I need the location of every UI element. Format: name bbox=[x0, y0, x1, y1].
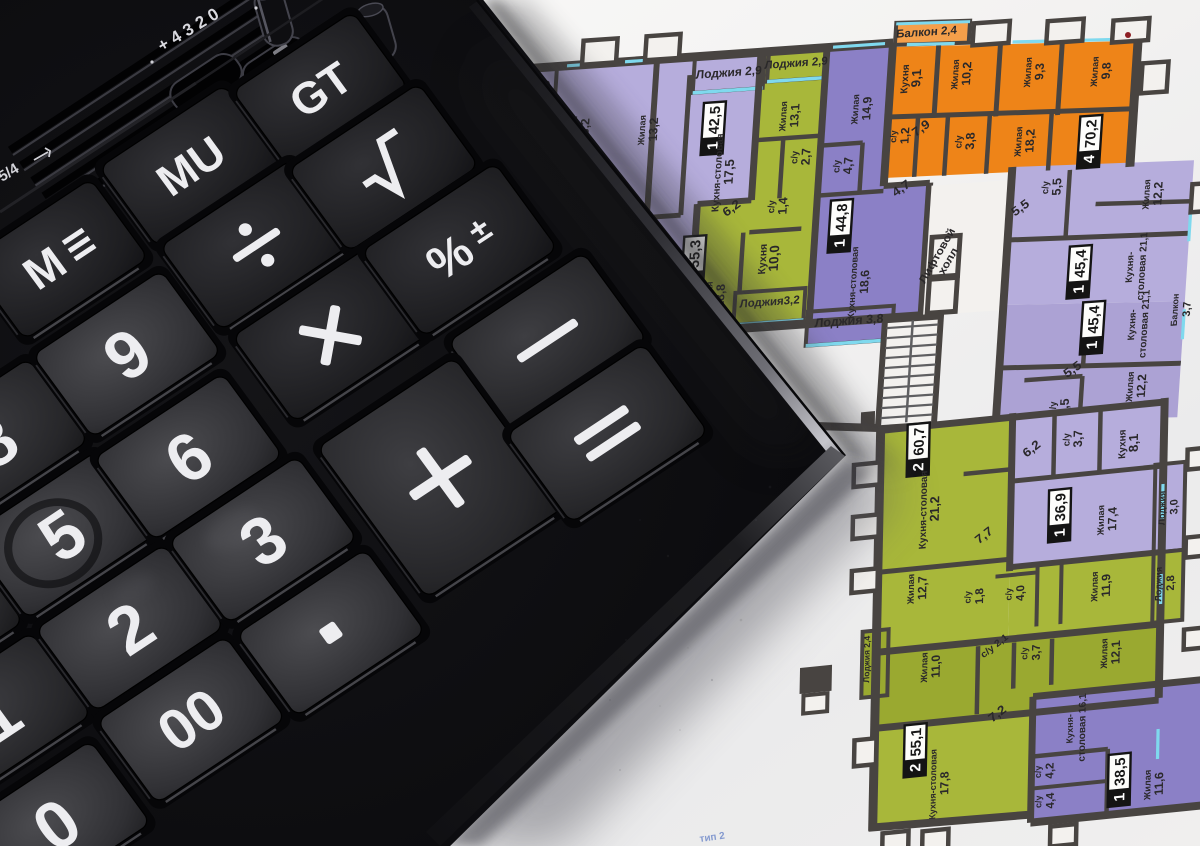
svg-text:18,6: 18,6 bbox=[857, 269, 873, 294]
svg-text:3,0: 3,0 bbox=[1168, 499, 1180, 515]
svg-text:с/у: с/у bbox=[1033, 795, 1043, 809]
svg-text:17,4: 17,4 bbox=[1105, 506, 1119, 531]
svg-text:9,1: 9,1 bbox=[908, 69, 924, 88]
svg-text:3,7: 3,7 bbox=[1181, 301, 1194, 317]
svg-text:3,7: 3,7 bbox=[1031, 644, 1043, 661]
svg-text:4,4: 4,4 bbox=[1045, 791, 1057, 809]
svg-text:21,2: 21,2 bbox=[927, 495, 942, 522]
svg-text:17,5: 17,5 bbox=[721, 159, 738, 185]
svg-text:10,2: 10,2 bbox=[959, 61, 975, 86]
svg-text:1: 1 bbox=[1111, 792, 1128, 802]
svg-text:Кухня-: Кухня- bbox=[1126, 309, 1139, 341]
svg-text:с/у: с/у bbox=[1019, 647, 1029, 661]
svg-text:55,1: 55,1 bbox=[909, 727, 926, 757]
svg-text:11,6: 11,6 bbox=[1152, 771, 1166, 796]
svg-text:3,8: 3,8 bbox=[963, 132, 978, 150]
svg-text:4,7: 4,7 bbox=[841, 156, 856, 174]
svg-text:36,9: 36,9 bbox=[1053, 492, 1070, 522]
svg-text:столовая 16,1: столовая 16,1 bbox=[1077, 693, 1089, 763]
svg-text:13,1: 13,1 bbox=[787, 103, 803, 128]
svg-text:Лоджия 2,4: Лоджия 2,4 bbox=[861, 635, 872, 683]
svg-text:11,9: 11,9 bbox=[1099, 573, 1113, 598]
svg-text:2: 2 bbox=[910, 462, 927, 472]
svg-text:1: 1 bbox=[1052, 528, 1069, 538]
svg-text:14,9: 14,9 bbox=[859, 96, 875, 121]
svg-text:2,8: 2,8 bbox=[1165, 575, 1177, 591]
svg-text:с/у: с/у bbox=[1003, 587, 1013, 601]
svg-text:1,4: 1,4 bbox=[775, 197, 790, 215]
svg-text:13,2: 13,2 bbox=[646, 117, 662, 142]
svg-text:17,8: 17,8 bbox=[937, 771, 951, 796]
svg-text:1: 1 bbox=[831, 239, 849, 249]
svg-text:9,3: 9,3 bbox=[1032, 62, 1047, 80]
svg-text:18,2: 18,2 bbox=[1022, 128, 1038, 153]
svg-text:Кухня-: Кухня- bbox=[1065, 714, 1076, 744]
svg-text:45,4: 45,4 bbox=[1086, 305, 1104, 334]
svg-text:38,5: 38,5 bbox=[1113, 757, 1130, 787]
svg-text:12,7: 12,7 bbox=[915, 575, 929, 600]
svg-text:45,4: 45,4 bbox=[1072, 249, 1090, 278]
svg-text:12,2: 12,2 bbox=[1134, 373, 1150, 398]
svg-text:5,5: 5,5 bbox=[1049, 178, 1064, 196]
svg-text:2,7: 2,7 bbox=[798, 147, 813, 165]
svg-text:12,1: 12,1 bbox=[1109, 640, 1123, 665]
svg-text:10,0: 10,0 bbox=[766, 245, 783, 272]
svg-text:11,0: 11,0 bbox=[929, 654, 943, 679]
svg-text:70,2: 70,2 bbox=[1083, 119, 1101, 148]
svg-text:44,8: 44,8 bbox=[833, 203, 851, 232]
svg-text:12,2: 12,2 bbox=[1150, 181, 1166, 206]
svg-text:42,5: 42,5 bbox=[706, 105, 724, 134]
svg-text:1: 1 bbox=[1070, 285, 1088, 295]
svg-text:4,2: 4,2 bbox=[1044, 762, 1056, 779]
svg-text:1,8: 1,8 bbox=[974, 587, 986, 605]
svg-text:Кухня-: Кухня- bbox=[1124, 251, 1137, 283]
svg-text:4,0: 4,0 bbox=[1015, 584, 1027, 601]
svg-text:Лоджия: Лоджия bbox=[1153, 566, 1164, 602]
svg-text:9,8: 9,8 bbox=[1099, 62, 1114, 80]
svg-text:1: 1 bbox=[1084, 340, 1102, 350]
svg-text:с/у: с/у bbox=[1033, 765, 1043, 779]
svg-text:Лоджия: Лоджия bbox=[1157, 490, 1168, 526]
svg-text:3,7: 3,7 bbox=[1071, 429, 1085, 448]
svg-text:60,7: 60,7 bbox=[912, 427, 929, 457]
svg-text:8,1: 8,1 bbox=[1126, 433, 1141, 453]
svg-text:с/у: с/у bbox=[963, 591, 973, 605]
svg-text:2: 2 bbox=[907, 763, 924, 773]
